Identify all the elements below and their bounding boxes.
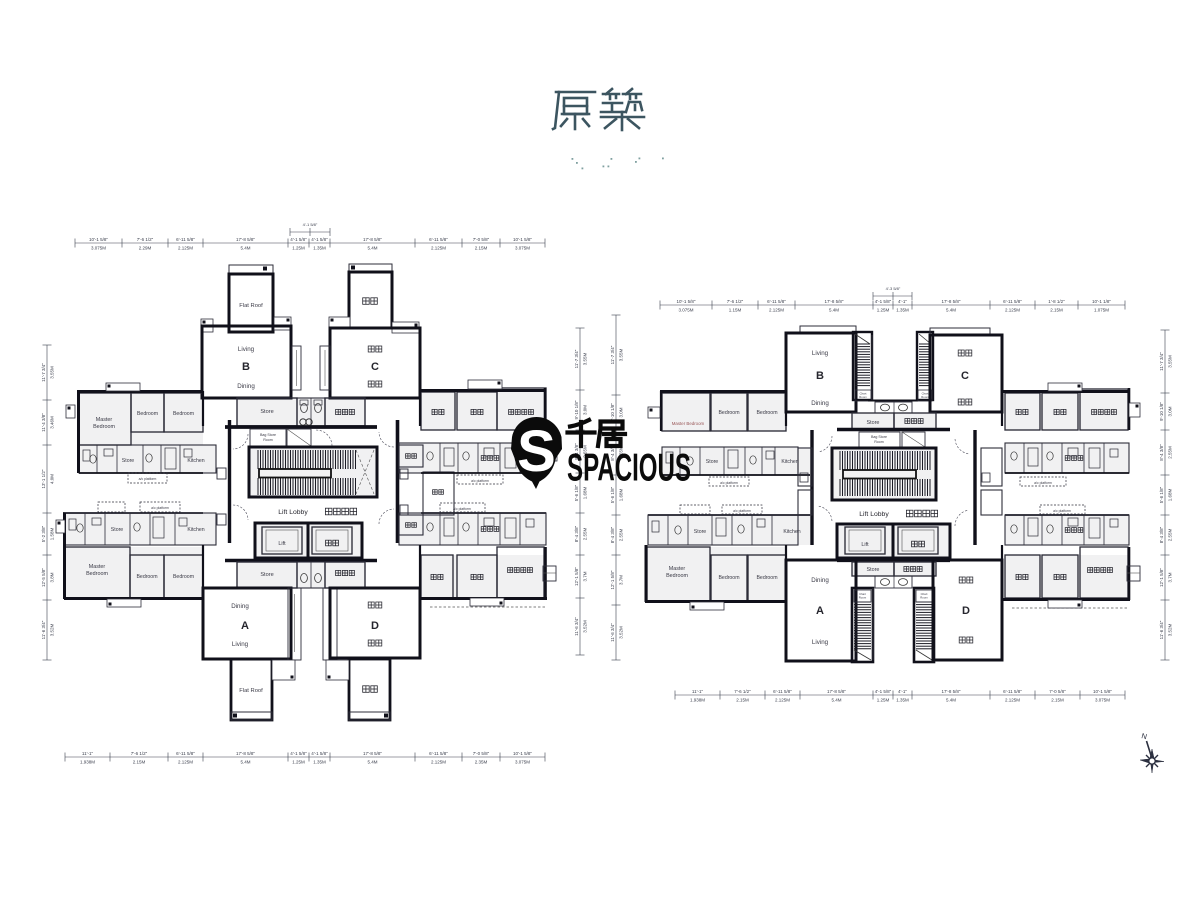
svg-text:5.4M: 5.4M [240, 759, 250, 764]
svg-text:3.075M: 3.075M [515, 245, 530, 250]
svg-text:7'-6 1/2": 7'-6 1/2" [131, 751, 148, 756]
svg-text:9'-10 1/8": 9'-10 1/8" [1159, 402, 1164, 421]
svg-text:4.0M: 4.0M [49, 474, 54, 484]
svg-text:3.52M: 3.52M [582, 620, 587, 633]
svg-text:Living: Living [812, 350, 829, 357]
svg-text:12'-1 5/8": 12'-1 5/8" [574, 567, 579, 586]
svg-text:1'-8 1/2": 1'-8 1/2" [1048, 299, 1065, 304]
svg-text:3.075M: 3.075M [515, 759, 530, 764]
svg-text:10'-1 5/8": 10'-1 5/8" [677, 299, 696, 304]
svg-text:11'-6 3/4": 11'-6 3/4" [41, 620, 46, 639]
svg-text:4'-1 5/8": 4'-1 5/8" [290, 751, 307, 756]
svg-text:11'-6 3/4": 11'-6 3/4" [610, 623, 615, 642]
svg-text:10'-1 1/8": 10'-1 1/8" [1092, 299, 1111, 304]
svg-text:1.68M: 1.68M [618, 488, 623, 501]
svg-text:7'-6 1/2": 7'-6 1/2" [727, 299, 744, 304]
svg-text:3.52M: 3.52M [49, 623, 54, 636]
svg-text:5.4M: 5.4M [946, 697, 956, 702]
svg-text:11'-1": 11'-1" [82, 751, 94, 756]
svg-text:6'-11 5/8": 6'-11 5/8" [176, 237, 195, 242]
svg-text:1.68M: 1.68M [1167, 488, 1172, 501]
svg-text:2.55M: 2.55M [1167, 446, 1172, 459]
svg-text:1.35M: 1.35M [896, 307, 909, 312]
svg-text:Living: Living [812, 639, 829, 646]
svg-text:17'-8 5/8": 17'-8 5/8" [236, 751, 255, 756]
svg-text:3.8M: 3.8M [49, 572, 54, 582]
svg-text:1.25M: 1.25M [877, 307, 890, 312]
svg-text:Room: Room [263, 438, 273, 442]
svg-text:2.125M: 2.125M [769, 307, 784, 312]
svg-text:17'-8 5/8": 17'-8 5/8" [363, 751, 382, 756]
svg-text:Dining: Dining [811, 577, 829, 584]
svg-text:3.075M: 3.075M [1095, 697, 1110, 702]
svg-text:7'-0 5/8": 7'-0 5/8" [1049, 689, 1066, 694]
svg-text:10'-1 5/8": 10'-1 5/8" [1093, 689, 1112, 694]
svg-text:2.15M: 2.15M [736, 697, 749, 702]
svg-text:a/c platform: a/c platform [733, 509, 751, 513]
svg-text:Lift Lobby: Lift Lobby [278, 509, 308, 516]
svg-text:11'-7 3/4": 11'-7 3/4" [1159, 352, 1164, 371]
svg-text:11'-6 3/4": 11'-6 3/4" [574, 617, 579, 636]
svg-text:a/c platform: a/c platform [139, 477, 157, 481]
svg-text:1.25M: 1.25M [292, 245, 305, 250]
svg-text:1.075M: 1.075M [1094, 307, 1109, 312]
svg-text:2.55M: 2.55M [618, 528, 623, 541]
svg-text:6'-11 5/8": 6'-11 5/8" [773, 689, 792, 694]
svg-text:4'-1 5/8": 4'-1 5/8" [311, 751, 328, 756]
svg-text:3.55M: 3.55M [49, 366, 54, 379]
svg-text:7'-6 1/2": 7'-6 1/2" [137, 237, 154, 242]
svg-text:3.7M: 3.7M [1167, 572, 1172, 582]
svg-text:Room: Room [859, 596, 867, 600]
svg-text:Room: Room [920, 596, 928, 600]
svg-text:3.7M: 3.7M [618, 575, 623, 585]
svg-text:3.55M: 3.55M [582, 352, 587, 365]
svg-text:Dining: Dining [237, 383, 255, 390]
svg-text:1.25M: 1.25M [877, 697, 890, 702]
svg-text:17'-8 5/8": 17'-8 5/8" [236, 237, 255, 242]
svg-text:3.075M: 3.075M [91, 245, 106, 250]
svg-text:3.7M: 3.7M [582, 571, 587, 581]
svg-text:11'-6 3/4": 11'-6 3/4" [1159, 620, 1164, 639]
svg-text:S: S [517, 419, 556, 484]
svg-text:6'-11 5/8": 6'-11 5/8" [767, 299, 786, 304]
svg-text:17'-8 5/8": 17'-8 5/8" [825, 299, 844, 304]
svg-text:1.938M: 1.938M [690, 697, 705, 702]
svg-text:4'-3 5/8": 4'-3 5/8" [886, 286, 901, 291]
svg-text:Lift Lobby: Lift Lobby [859, 511, 889, 518]
svg-text:5'-6 1/8": 5'-6 1/8" [1159, 486, 1164, 503]
svg-text:5.4M: 5.4M [831, 697, 841, 702]
svg-text:2.55M: 2.55M [582, 527, 587, 540]
svg-text:2.125M: 2.125M [1005, 697, 1020, 702]
svg-text:12'-5 5/8": 12'-5 5/8" [41, 568, 46, 587]
svg-text:3.55M: 3.55M [618, 348, 623, 361]
svg-text:7'-0 5/8": 7'-0 5/8" [473, 751, 490, 756]
svg-text:2.35M: 2.35M [475, 759, 488, 764]
svg-text:Room: Room [859, 395, 867, 399]
svg-text:3.075M: 3.075M [678, 307, 693, 312]
svg-text:2.15M: 2.15M [133, 759, 146, 764]
svg-text:a/c platform: a/c platform [151, 506, 169, 510]
svg-text:3.55M: 3.55M [1167, 355, 1172, 368]
svg-text:C: C [371, 361, 379, 373]
svg-text:5.4M: 5.4M [946, 307, 956, 312]
svg-text:6'-11 5/8": 6'-11 5/8" [1003, 299, 1022, 304]
svg-text:Dining: Dining [231, 603, 249, 610]
svg-text:8'-4 3/8": 8'-4 3/8" [1159, 526, 1164, 543]
svg-text:4'-1 5/8": 4'-1 5/8" [303, 222, 318, 227]
svg-text:17'-8 5/8": 17'-8 5/8" [942, 689, 961, 694]
svg-text:4'-1 5/8": 4'-1 5/8" [875, 689, 892, 694]
svg-text:11'-4 3/8": 11'-4 3/8" [41, 413, 46, 432]
svg-text:10'-1 5/8": 10'-1 5/8" [513, 237, 532, 242]
svg-text:3.0M: 3.0M [582, 405, 587, 415]
svg-text:17'-8 5/8": 17'-8 5/8" [827, 689, 846, 694]
svg-text:9'-10 1/8": 9'-10 1/8" [574, 400, 579, 419]
svg-text:9'-10 1/8": 9'-10 1/8" [610, 403, 615, 422]
svg-text:2.125M: 2.125M [431, 245, 446, 250]
svg-text:7'-6 1/2": 7'-6 1/2" [734, 689, 751, 694]
svg-text:6'-11 5/8": 6'-11 5/8" [429, 751, 448, 756]
svg-text:A: A [816, 605, 824, 617]
svg-text:6'-11 5/8": 6'-11 5/8" [429, 237, 448, 242]
svg-text:B: B [242, 361, 250, 373]
svg-text:3.52M: 3.52M [618, 626, 623, 639]
svg-text:Room: Room [921, 395, 929, 399]
svg-text:2.15M: 2.15M [1051, 697, 1064, 702]
svg-text:17'-8 5/8": 17'-8 5/8" [363, 237, 382, 242]
svg-text:C: C [961, 370, 969, 382]
svg-text:Living: Living [232, 641, 249, 648]
svg-text:10'-1 5/8": 10'-1 5/8" [513, 751, 532, 756]
svg-text:B: B [816, 370, 824, 382]
svg-text:Living: Living [238, 346, 255, 353]
svg-text:3.0M: 3.0M [618, 407, 623, 417]
svg-text:a/c platform: a/c platform [471, 479, 489, 483]
svg-text:1.938M: 1.938M [80, 759, 95, 764]
svg-text:5.4M: 5.4M [240, 245, 250, 250]
svg-text:11'-1": 11'-1" [692, 689, 704, 694]
svg-text:5.4M: 5.4M [367, 245, 377, 250]
svg-text:Dining: Dining [811, 400, 829, 407]
svg-text:a/c platform: a/c platform [720, 481, 738, 485]
svg-text:A: A [241, 620, 249, 632]
svg-text:Bag Store: Bag Store [260, 433, 276, 437]
svg-text:a/c platform: a/c platform [1034, 481, 1052, 485]
svg-text:a/c platform: a/c platform [1053, 509, 1071, 513]
svg-text:6'-11 5/8": 6'-11 5/8" [1003, 689, 1022, 694]
svg-text:12'-1 5/8": 12'-1 5/8" [1159, 568, 1164, 587]
svg-text:2.55M: 2.55M [1167, 528, 1172, 541]
svg-text:2.29M: 2.29M [139, 245, 152, 250]
svg-text:3.46M: 3.46M [49, 416, 54, 429]
svg-text:D: D [371, 620, 379, 632]
svg-text:2.125M: 2.125M [178, 245, 193, 250]
svg-text:4'-1": 4'-1" [898, 299, 907, 304]
svg-text:4'-1 5/8": 4'-1 5/8" [875, 299, 892, 304]
svg-text:2.125M: 2.125M [1005, 307, 1020, 312]
svg-text:4'-1": 4'-1" [898, 689, 907, 694]
svg-text:Flat Roof: Flat Roof [239, 303, 263, 309]
svg-text:4'-1 5/8": 4'-1 5/8" [311, 237, 328, 242]
svg-text:13'-1 1/2": 13'-1 1/2" [41, 469, 46, 488]
svg-text:D: D [962, 605, 970, 617]
svg-text:1.58M: 1.58M [49, 527, 54, 540]
svg-text:1.25M: 1.25M [292, 759, 305, 764]
svg-text:Bag Store: Bag Store [871, 435, 887, 439]
svg-text:1.35M: 1.35M [896, 697, 909, 702]
svg-text:1.35M: 1.35M [313, 245, 326, 250]
svg-text:5.4M: 5.4M [367, 759, 377, 764]
svg-text:2.125M: 2.125M [178, 759, 193, 764]
svg-text:2.15M: 2.15M [475, 245, 488, 250]
svg-text:2.125M: 2.125M [431, 759, 446, 764]
svg-text:3.0M: 3.0M [1167, 406, 1172, 416]
svg-text:17'-8 5/8": 17'-8 5/8" [942, 299, 961, 304]
svg-text:1.35M: 1.35M [313, 759, 326, 764]
svg-text:8'-4 3/8": 8'-4 3/8" [1159, 444, 1164, 461]
svg-text:2.15M: 2.15M [1050, 307, 1063, 312]
svg-text:1.15M: 1.15M [729, 307, 742, 312]
svg-text:3.52M: 3.52M [1167, 623, 1172, 636]
svg-text:4'-1 5/8": 4'-1 5/8" [290, 237, 307, 242]
svg-text:8'-4 3/8": 8'-4 3/8" [574, 525, 579, 542]
svg-text:Room: Room [874, 440, 884, 444]
svg-text:10'-1 5/8": 10'-1 5/8" [89, 237, 108, 242]
svg-text:8'-4 3/8": 8'-4 3/8" [610, 526, 615, 543]
svg-text:11'-7 3/4": 11'-7 3/4" [574, 349, 579, 368]
svg-text:5'-2 3/8": 5'-2 3/8" [41, 525, 46, 542]
svg-text:11'-7 3/4": 11'-7 3/4" [41, 363, 46, 382]
svg-text:11'-7 3/4": 11'-7 3/4" [610, 345, 615, 364]
svg-text:a/c platform: a/c platform [453, 507, 471, 511]
svg-text:7'-0 5/8": 7'-0 5/8" [473, 237, 490, 242]
svg-text:12'-1 5/8": 12'-1 5/8" [610, 570, 615, 589]
svg-text:6'-11 5/8": 6'-11 5/8" [176, 751, 195, 756]
svg-text:SPACIOUS: SPACIOUS [567, 447, 691, 490]
svg-text:Flat Roof: Flat Roof [239, 688, 263, 694]
svg-text:5.4M: 5.4M [829, 307, 839, 312]
svg-text:2.125M: 2.125M [775, 697, 790, 702]
